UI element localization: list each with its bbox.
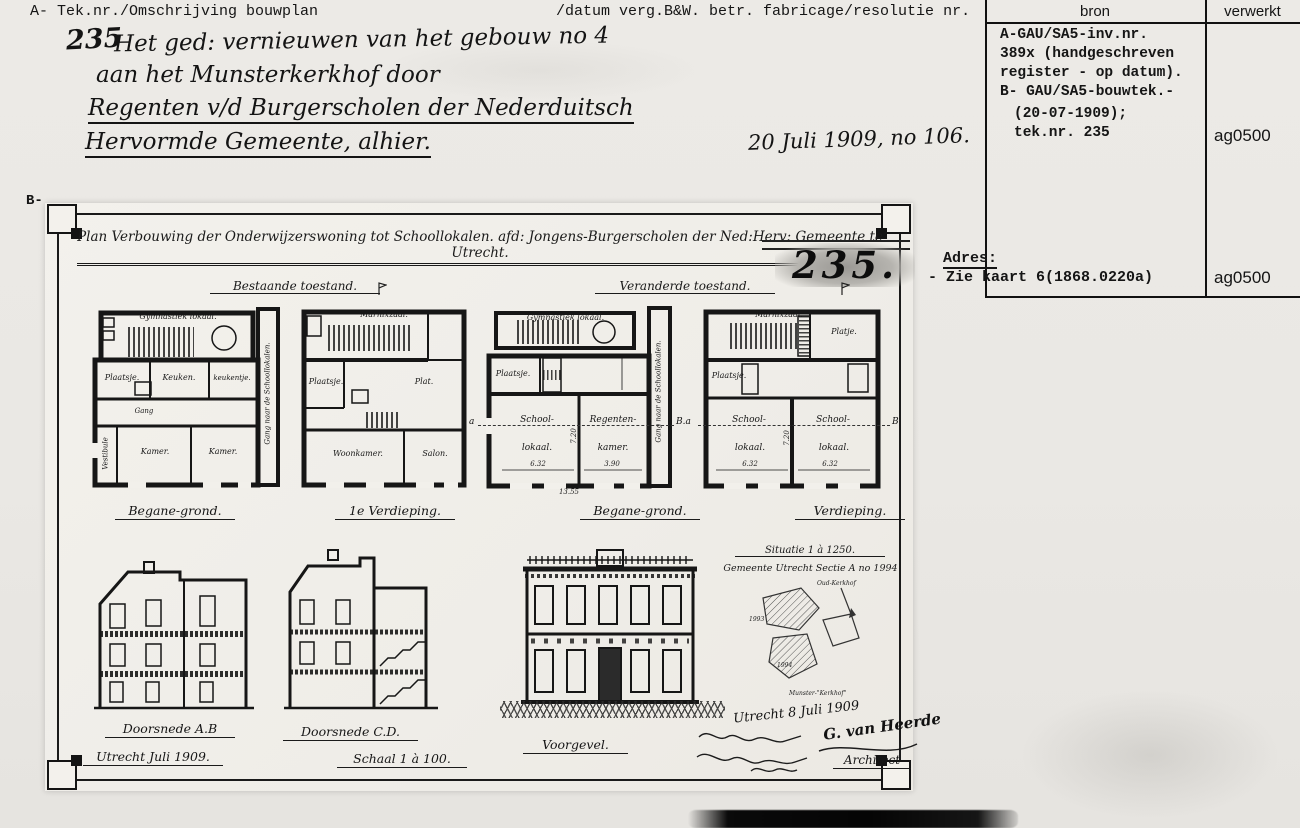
dimension-label: 3.90 [588,460,636,468]
plan-caption: Begane-grond. [115,503,235,520]
handwritten-date-note: 20 Juli 1909, no 106. [748,123,971,155]
parcel-number: 1994 [777,662,792,669]
section-cd-drawing [276,548,451,718]
floorplan-existing-first: Marnixzaal. Plaatsje. Plat. Woonkamer. S… [296,298,472,490]
table-vertical-rule-mid [1205,0,1207,297]
room-label: Plaatsje. [487,370,539,378]
source-line-3: register - op datum). [1000,64,1183,83]
situatie-drawing [733,578,885,703]
corner-ornament-icon [47,204,77,234]
source-line-1: A-GAU/SA5-inv.nr. [1000,26,1183,45]
situatie-title: Situatie 1 à 1250. [735,545,885,557]
corner-ornament-icon [881,204,911,234]
room-label: lokaal. [506,444,568,453]
source-line-2: 389x (handgeschreven [1000,45,1183,64]
room-label: Plaatsje. [95,374,149,382]
source-line-5: (20-07-1909); [1000,102,1183,124]
handwritten-line-1: Het ged: vernieuwen van het gebouw no 4 [114,23,609,58]
section-line-ab [478,425,674,426]
adres-label: Adres: [943,250,997,269]
room-label: Gang naar de Schoollokalen. [656,307,663,477]
verwerkt-code-bottom: ag0500 [1214,268,1271,288]
section-ab-caption: Doorsnede A.B [105,721,235,738]
scan-smudge-dark [688,810,1018,828]
room-label: Gang naar de Schoollokalen. [265,309,272,479]
column-header-verwerkt: verwerkt [1205,3,1300,20]
section-flag-icon [377,281,387,295]
ground-hatching [500,701,725,718]
handwritten-line-4: Hervormde Gemeente, alhier. [85,129,431,158]
source-line-4: B- GAU/SA5-bouwtek.- [1000,83,1183,102]
section-line-ab [698,425,890,426]
room-label: Kamer. [122,448,188,456]
room-label: Marnixzaal. [724,311,834,319]
room-label: School- [800,416,866,425]
dimension-label: 6.32 [722,460,778,468]
dimension-label: 6.32 [510,460,566,468]
floorplan-new-ground: Gymnastiek lokaal. Plaatsje. School- lok… [482,298,674,496]
room-label: Plaatsje. [301,378,351,386]
front-elevation-caption: Voorgevel. [523,737,628,754]
table-horizontal-rule-top [985,22,1300,24]
section-ab-drawing [88,556,260,716]
section-marker-a: a [469,417,474,427]
room-label: Regenten- [582,416,644,425]
room-label: Woonkamer. [318,450,398,458]
corner-ornament-icon [47,760,77,790]
floorplan-existing-ground: Gymnastiek lokaal. Plaatsje. Keuken. keu… [88,298,284,490]
dimension-label: 13.55 [534,488,604,496]
floorplan-drawing [88,298,284,490]
section-cd-caption: Doorsnede C.D. [283,724,418,741]
state-label-right: Veranderde toestand. [595,279,775,294]
situatie-sketch: Oud-Kerkhof 1993 1994 Munster-"Kerkhof" [733,578,885,703]
situatie-bottom-label: Munster-"Kerkhof" [789,690,846,697]
room-label: Plaatsje. [703,372,755,380]
header-middle-label: /datum verg.B&W. betr. fabricage/resolut… [556,3,970,20]
handwritten-line-3: Regenten v/d Burgerscholen der Nederduit… [88,95,634,124]
source-reference-block: A-GAU/SA5-inv.nr. 389x (handgeschreven r… [1000,26,1183,143]
room-label: Kamer. [192,448,254,456]
room-label: School- [502,416,572,425]
scanned-bouwplan-document: A- Tek.nr./Omschrijving bouwplan /datum … [0,0,1300,828]
source-line-6: tek.nr. 235 [1000,124,1183,143]
front-elevation-drawing [515,542,705,710]
room-label: Gymnastiek lokaal. [114,313,242,321]
room-label: keukentje. [206,375,258,382]
parcel-number: 1993 [749,616,764,623]
plan-caption: Verdieping. [795,503,905,520]
handwritten-line-2: aan het Munsterkerkhof door [96,62,440,88]
room-label: kamer. [586,444,640,453]
room-label: lokaal. [720,444,780,453]
sheet-b-label: B- [26,193,43,209]
situatie-top-label: Oud-Kerkhof [817,580,856,587]
room-label: Salon. [408,450,462,458]
room-label: lokaal. [804,444,864,453]
column-header-bron: bron [985,3,1205,20]
situatie-subtitle: Gemeente Utrecht Sectie A no 1994 [713,563,908,574]
section-marker-ba: B.a [676,417,691,427]
section-marker-b: B [892,417,899,427]
header-left-label: A- Tek.nr./Omschrijving bouwplan [30,3,318,20]
sheet-date-caption: Utrecht Juli 1909. [83,749,223,766]
adres-value: - Zie kaart 6(1868.0220a) [928,269,1153,286]
verwerkt-code-top: ag0500 [1214,126,1271,146]
room-label: Gang [114,408,174,415]
plan-caption: Begane-grond. [580,503,700,520]
floorplan-drawing [296,298,472,490]
state-label-left: Bestaande toestand. [210,279,380,294]
scan-blotch [1020,690,1280,820]
room-label: Gymnastiek lokaal. [508,314,623,322]
architectural-drawing-sheet: Plan Verbouwing der Onderwijzerswoning t… [45,203,913,791]
room-label: Platje. [818,328,870,336]
plan-caption: 1e Verdieping. [335,503,455,520]
table-horizontal-rule-bottom [985,296,1300,298]
room-label: Marnixzaal. [324,311,444,319]
architect-role-caption: Architect [833,753,911,769]
room-label: Keuken. [150,374,208,382]
dimension-label: 6.32 [802,460,858,468]
room-label: Vestibule [103,424,110,484]
dimension-label: 7.20 [570,406,578,466]
room-label: School- [716,416,782,425]
floorplan-new-first: Marnixzaal. Platje. Plaatsje. School- lo… [698,298,888,496]
scale-caption: Schaal 1 à 100. [337,751,467,768]
section-flag-icon [840,281,850,295]
dimension-label: 7.20 [783,408,791,468]
room-label: Plat. [396,378,452,386]
